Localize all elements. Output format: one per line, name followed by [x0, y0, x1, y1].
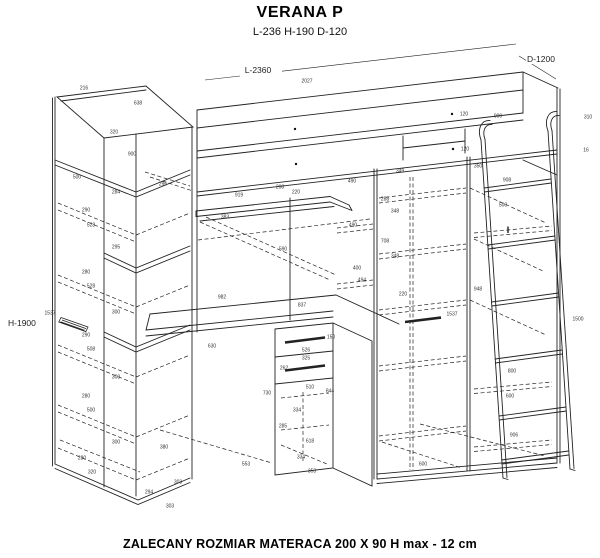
wardrobe-left-handle: [59, 318, 88, 332]
fastener-dots: [294, 113, 454, 165]
dimension-height-label: H-1900: [8, 318, 36, 328]
furniture-line-drawing: [0, 0, 600, 558]
furniture-assembly-diagram-page: VERANA P L-236 H-190 D-120: [0, 0, 600, 558]
solid-lines: [53, 72, 576, 505]
handles: [59, 227, 508, 371]
dimension-depth-label: D-1200: [526, 54, 556, 64]
dimension-length-label: L-2360: [245, 65, 271, 75]
mattress-note: ZALECANY ROZMIAR MATERACA 200 X 90 H max…: [123, 537, 477, 551]
footer: ZALECANY ROZMIAR MATERACA 200 X 90 H max…: [0, 537, 600, 551]
wardrobe-middle-handle: [405, 318, 441, 322]
drawer-handle-bottom: [285, 366, 325, 371]
drawer-handle-top: [285, 338, 325, 343]
